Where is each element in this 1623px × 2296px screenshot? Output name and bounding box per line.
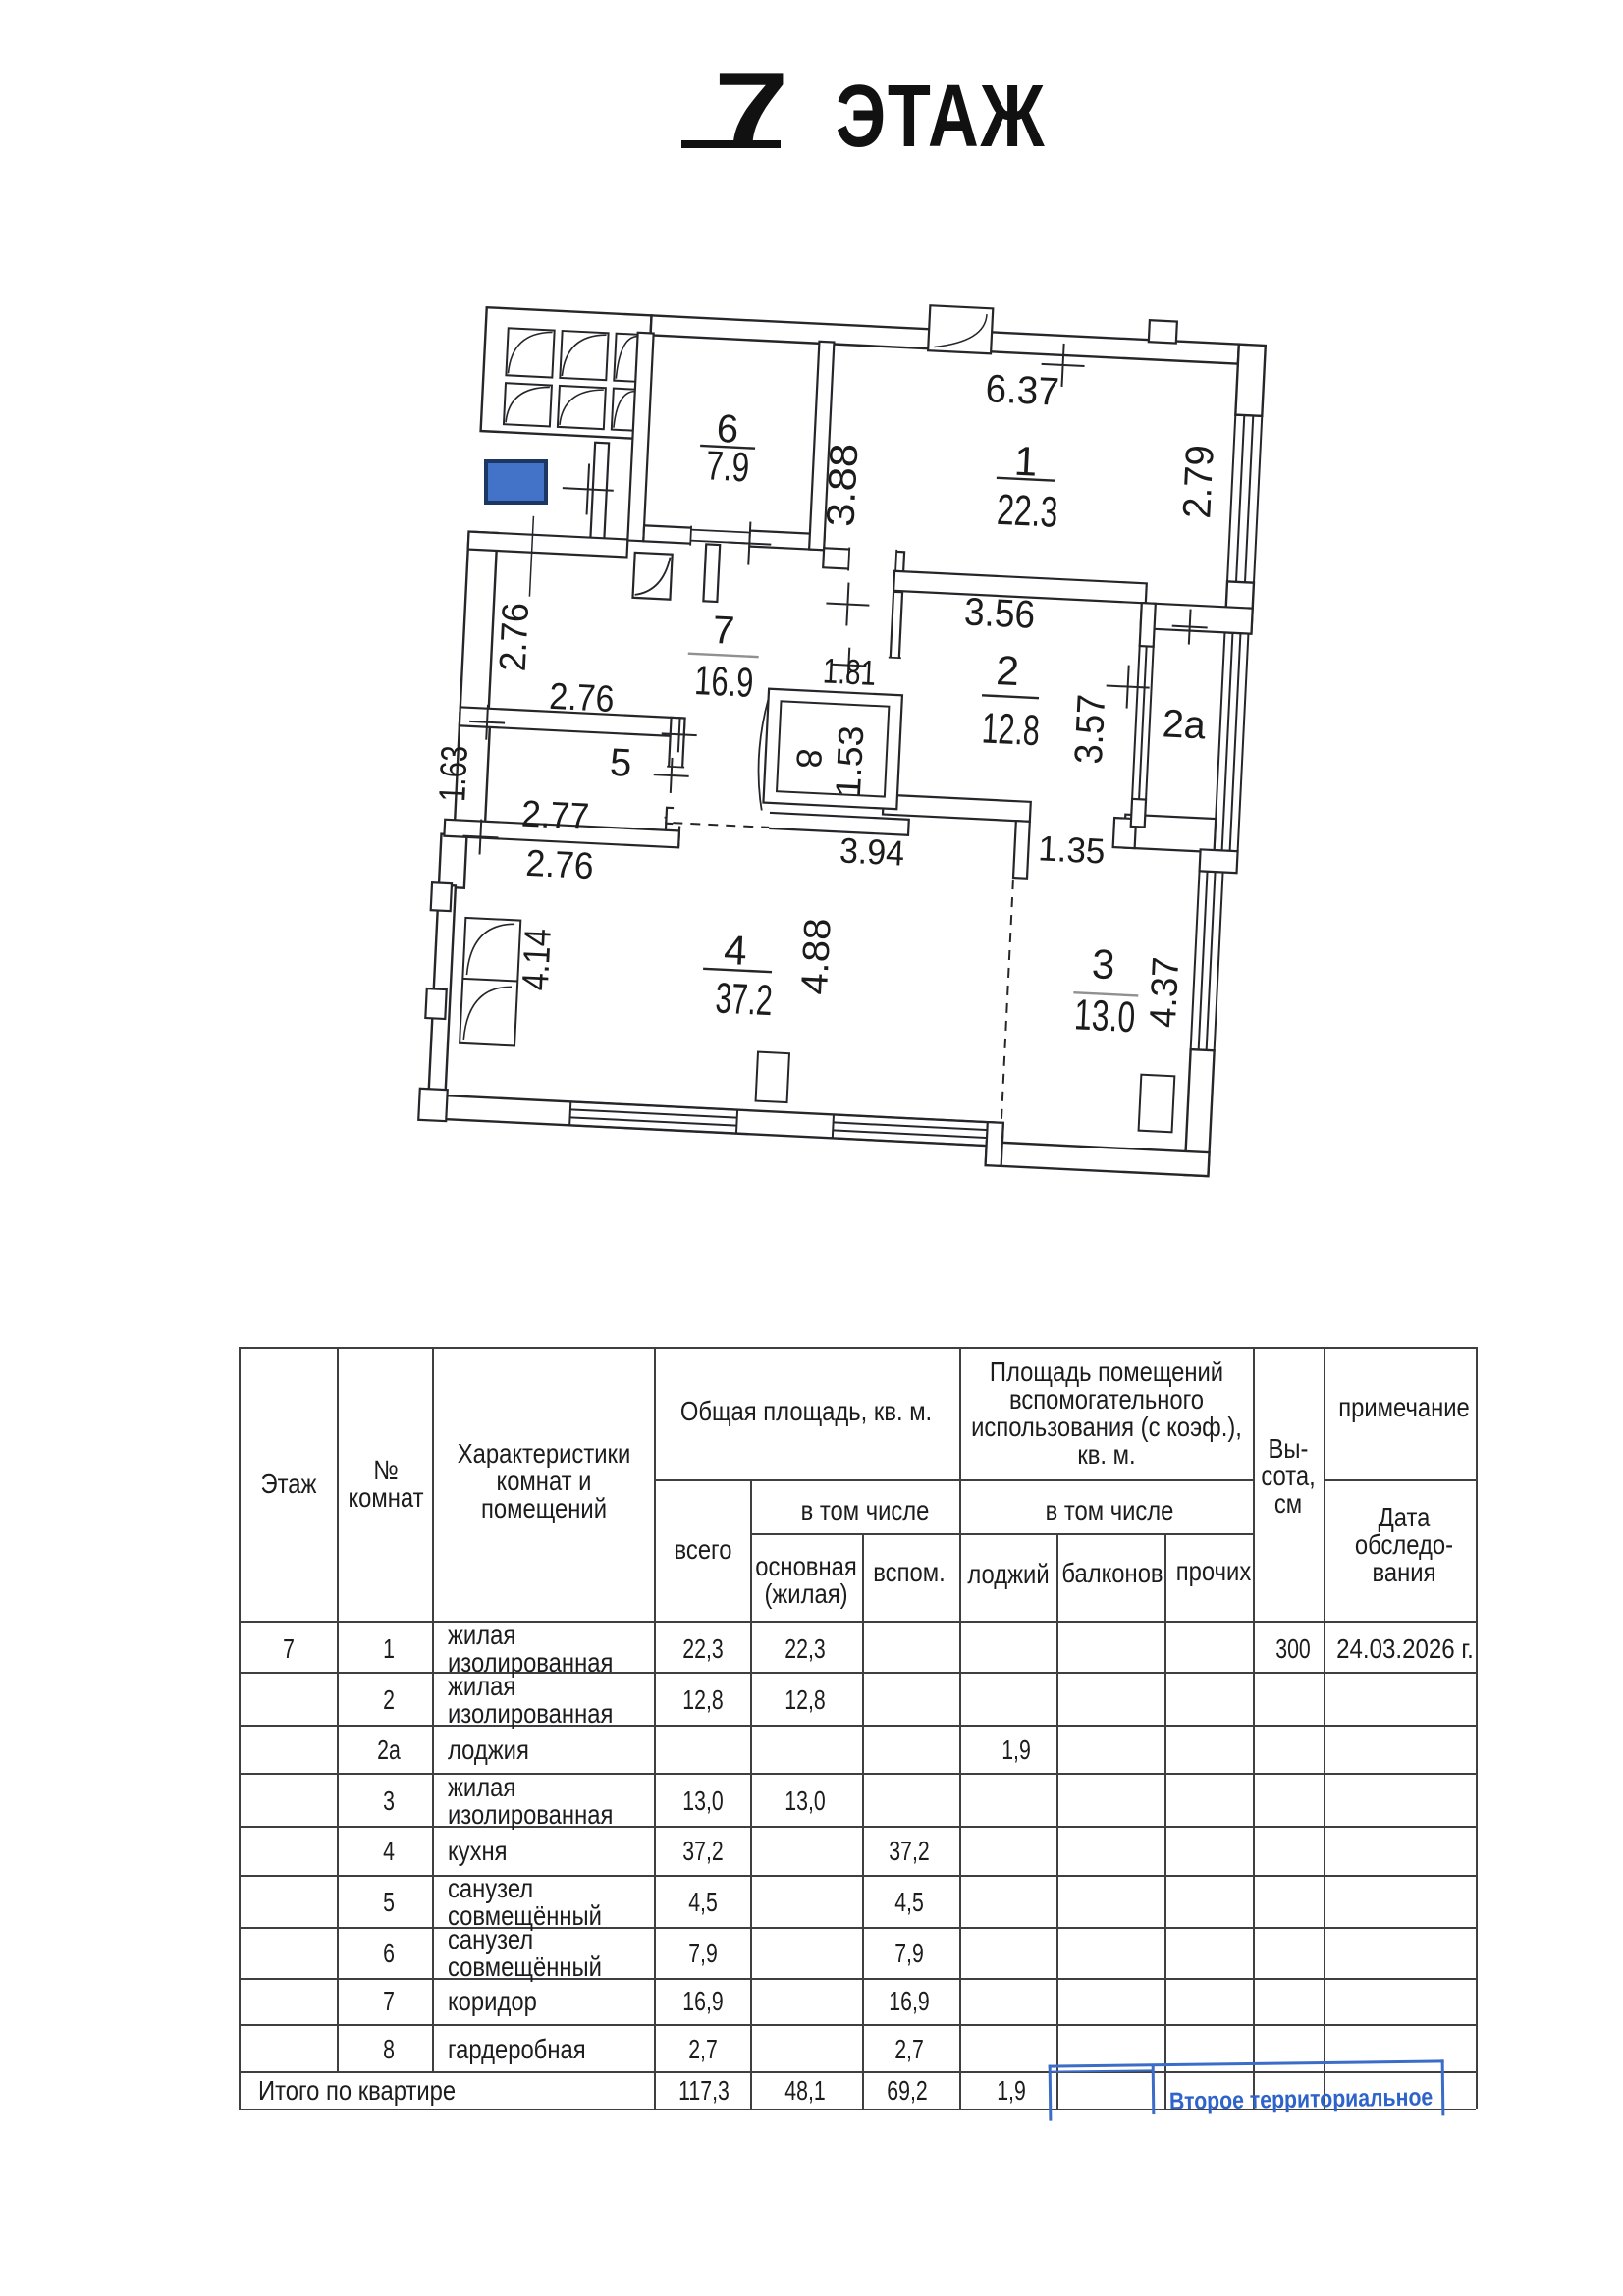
- svg-text:1.35: 1.35: [1038, 828, 1107, 871]
- svg-text:7: 7: [712, 609, 735, 653]
- svg-text:13.0: 13.0: [1073, 990, 1136, 1041]
- svg-text:2.76: 2.76: [525, 843, 595, 887]
- svg-text:8: 8: [788, 748, 830, 770]
- svg-text:3.56: 3.56: [963, 590, 1036, 636]
- svg-text:4.14: 4.14: [515, 928, 560, 991]
- svg-text:3: 3: [1091, 940, 1116, 988]
- svg-text:1.81: 1.81: [822, 650, 877, 693]
- svg-text:4.88: 4.88: [794, 917, 839, 995]
- svg-text:1.63: 1.63: [432, 745, 476, 803]
- svg-text:3.88: 3.88: [819, 443, 866, 528]
- svg-text:16.9: 16.9: [693, 657, 754, 706]
- svg-text:6.37: 6.37: [985, 367, 1060, 414]
- svg-text:2a: 2a: [1162, 702, 1208, 747]
- svg-text:1: 1: [1013, 438, 1039, 485]
- svg-text:22.3: 22.3: [996, 486, 1058, 537]
- svg-text:12.8: 12.8: [981, 704, 1041, 755]
- svg-text:2.79: 2.79: [1175, 444, 1222, 519]
- svg-text:2: 2: [995, 647, 1020, 694]
- svg-text:4: 4: [723, 927, 748, 974]
- svg-text:2.76: 2.76: [548, 676, 615, 721]
- svg-text:5: 5: [609, 741, 632, 785]
- svg-text:2.76: 2.76: [493, 602, 537, 672]
- svg-text:3.57: 3.57: [1067, 693, 1113, 765]
- svg-text:4.37: 4.37: [1143, 956, 1187, 1029]
- svg-text:37.2: 37.2: [714, 974, 773, 1025]
- svg-text:7.9: 7.9: [705, 442, 750, 490]
- svg-text:2.77: 2.77: [520, 794, 590, 838]
- svg-text:3.94: 3.94: [839, 829, 905, 873]
- svg-text:1.53: 1.53: [828, 724, 872, 798]
